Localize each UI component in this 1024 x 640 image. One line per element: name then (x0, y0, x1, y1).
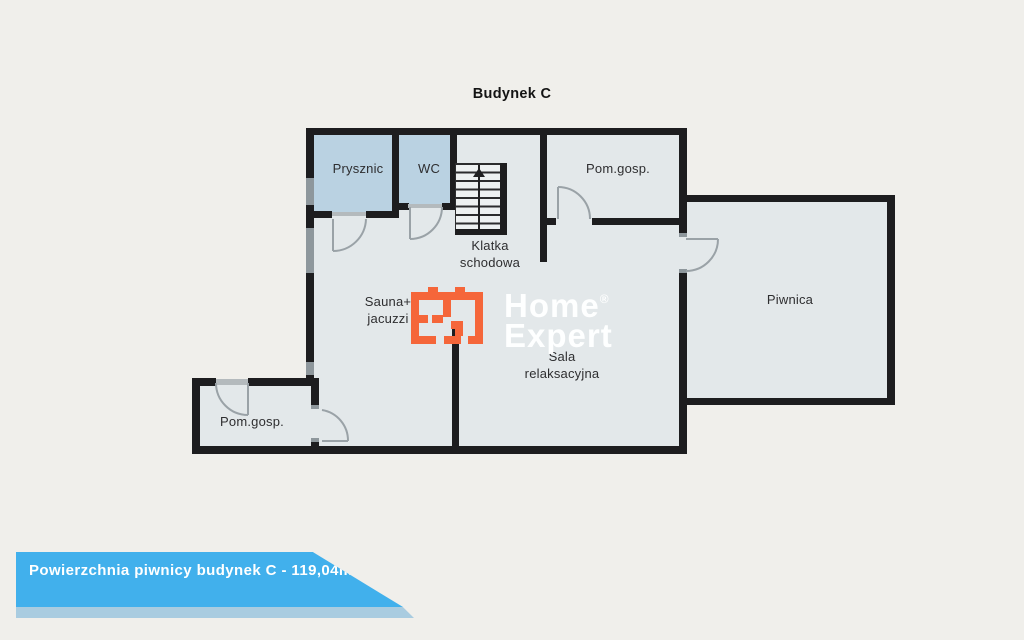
wall (540, 131, 547, 262)
door-jamb (311, 438, 319, 442)
page-title: Budynek C (473, 86, 551, 102)
door-jamb (311, 405, 319, 409)
logo-word-expert: Expert (504, 321, 613, 351)
label-sauna-jacuzzi: Sauna+ jacuzzi (365, 293, 411, 327)
floor-plan-page: Budynek C (0, 0, 1024, 640)
window-segment (306, 228, 314, 273)
wall (500, 163, 507, 235)
door-jamb (679, 233, 687, 237)
staircase (455, 163, 506, 231)
registered-mark: ® (600, 292, 609, 306)
label-wc: WC (418, 160, 440, 177)
logo-word-home: Home® (504, 284, 613, 321)
label-line: Sauna+ (365, 293, 411, 310)
wall (540, 218, 556, 225)
label-prysznic: Prysznic (333, 160, 384, 177)
area-banner: Powierzchnia piwnicy budynek C - 119,04m… (16, 552, 403, 607)
door-threshold (332, 212, 366, 216)
label-pom-gosp-top: Pom.gosp. (586, 160, 650, 177)
label-line: Klatka (460, 237, 520, 254)
stairs-direction-arrow-icon (473, 168, 485, 177)
door-threshold (408, 204, 442, 208)
door-threshold (216, 379, 248, 385)
wall (679, 272, 687, 454)
label-klatka-schodowa: Klatka schodowa (460, 237, 520, 271)
wall (192, 378, 200, 454)
wall (455, 229, 507, 235)
homeexpert-logo: Home® Expert (411, 284, 613, 351)
area-banner-shadow-strip (16, 607, 414, 618)
wall (592, 218, 687, 225)
wall (306, 128, 687, 135)
wall (887, 195, 895, 405)
homeexpert-logo-text: Home® Expert (504, 284, 613, 351)
wall (192, 446, 687, 454)
area-banner-text: Powierzchnia piwnicy budynek C - 119,04m… (16, 552, 403, 579)
wall (687, 398, 887, 405)
wall (687, 195, 895, 202)
window-segment (306, 362, 314, 375)
door-jamb (679, 269, 687, 273)
homeexpert-logo-icon (411, 287, 483, 349)
label-pom-gosp-bottom: Pom.gosp. (220, 413, 284, 430)
label-piwnica: Piwnica (767, 291, 813, 308)
label-line: schodowa (460, 254, 520, 271)
wall (248, 378, 314, 386)
wall (306, 211, 332, 218)
label-line: relaksacyjna (525, 365, 600, 382)
window-segment (306, 178, 314, 205)
wall (366, 211, 399, 218)
label-line: jacuzzi (365, 310, 411, 327)
